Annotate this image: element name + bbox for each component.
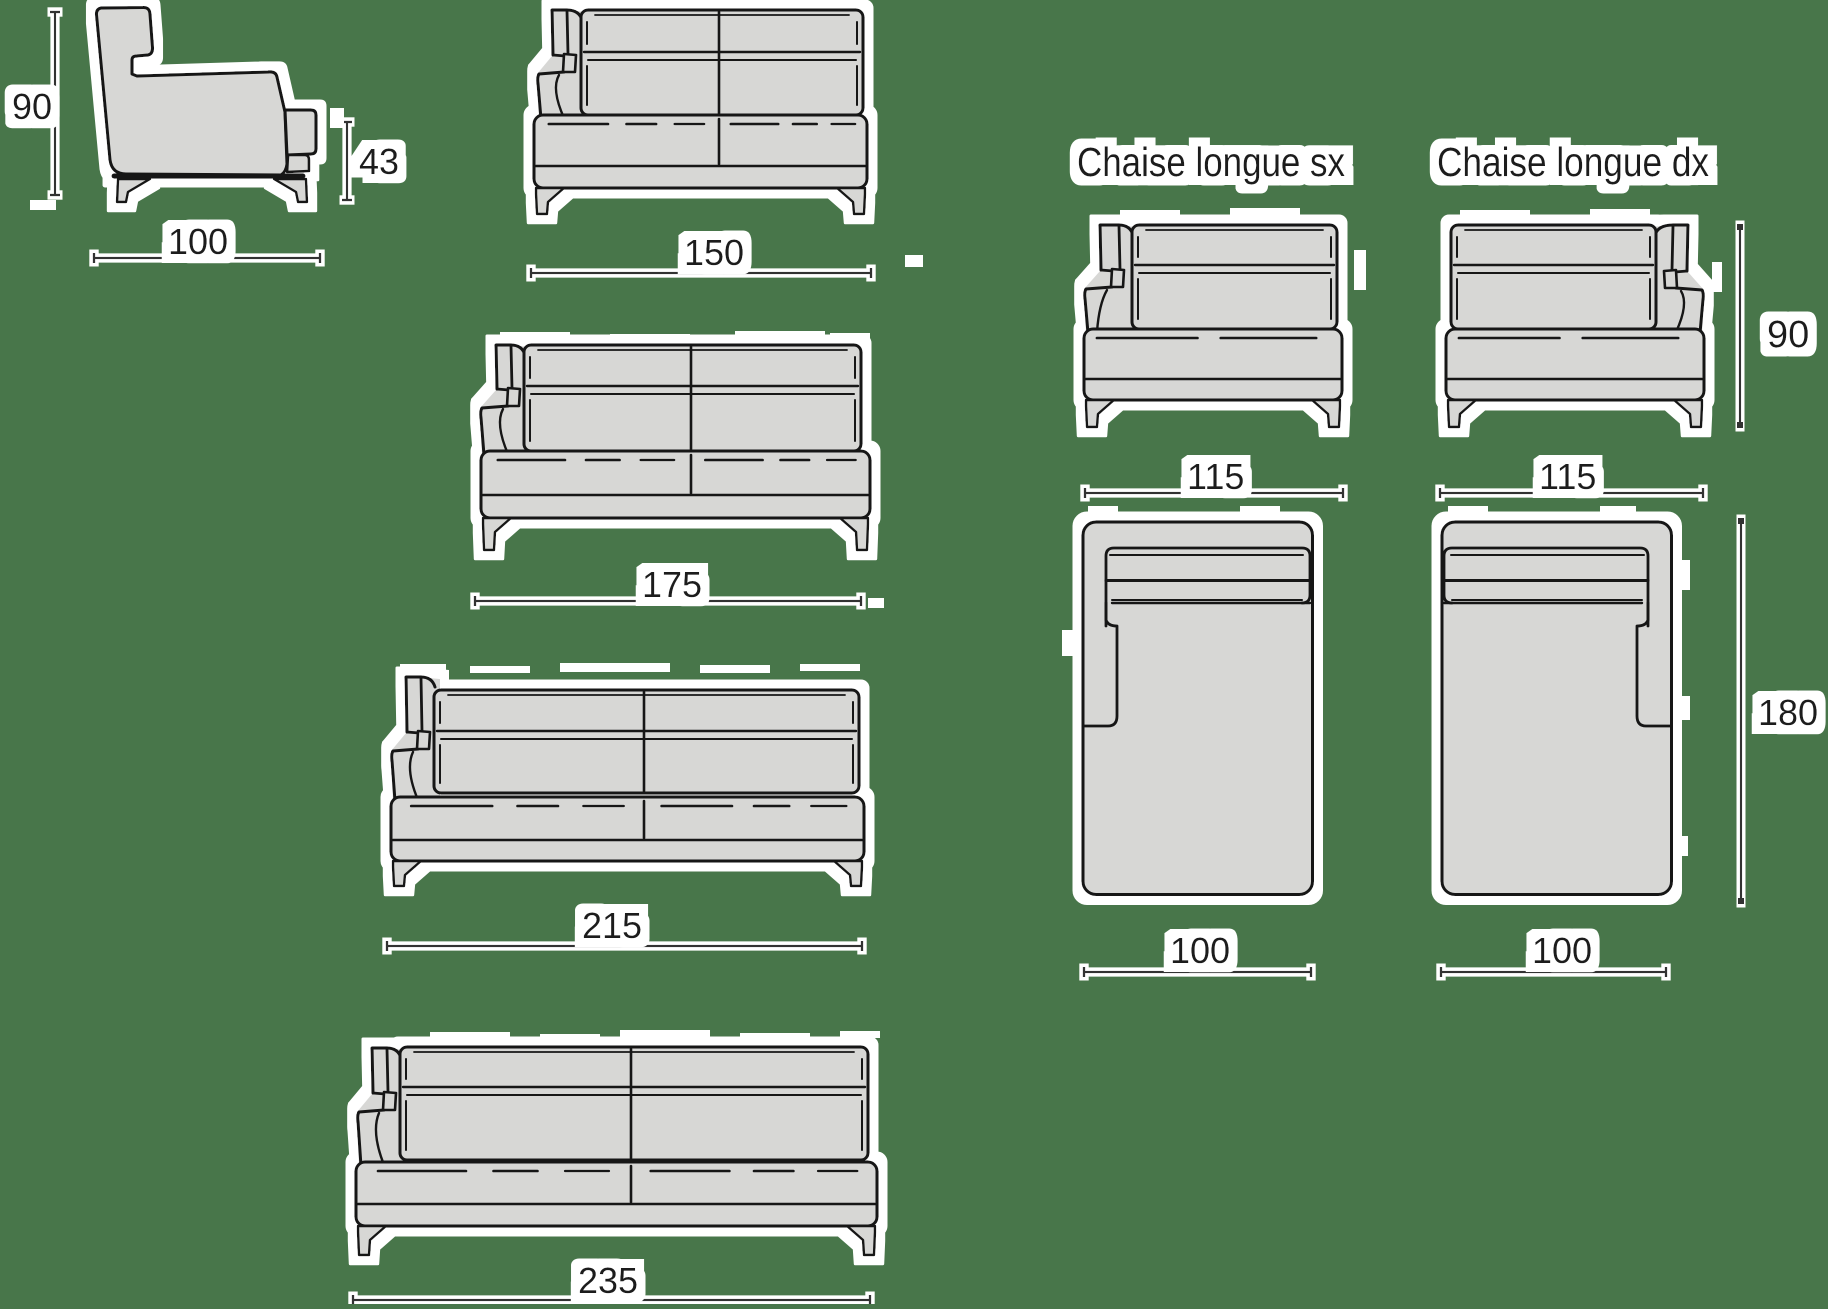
svg-text:43: 43: [359, 141, 399, 182]
svg-text:180: 180: [1758, 692, 1818, 733]
svg-text:100: 100: [1170, 930, 1230, 971]
svg-text:150: 150: [684, 232, 744, 273]
svg-text:100: 100: [1532, 930, 1592, 971]
svg-text:100: 100: [168, 221, 228, 262]
svg-text:175: 175: [642, 564, 702, 605]
svg-text:90: 90: [1767, 314, 1809, 356]
svg-text:215: 215: [582, 905, 642, 946]
svg-text:Chaise longue dx: Chaise longue dx: [1437, 139, 1709, 185]
svg-text:Chaise longue sx: Chaise longue sx: [1077, 139, 1345, 185]
svg-text:90: 90: [12, 86, 52, 127]
svg-text:115: 115: [1187, 456, 1244, 497]
svg-text:115: 115: [1539, 456, 1596, 497]
svg-text:235: 235: [578, 1260, 638, 1301]
